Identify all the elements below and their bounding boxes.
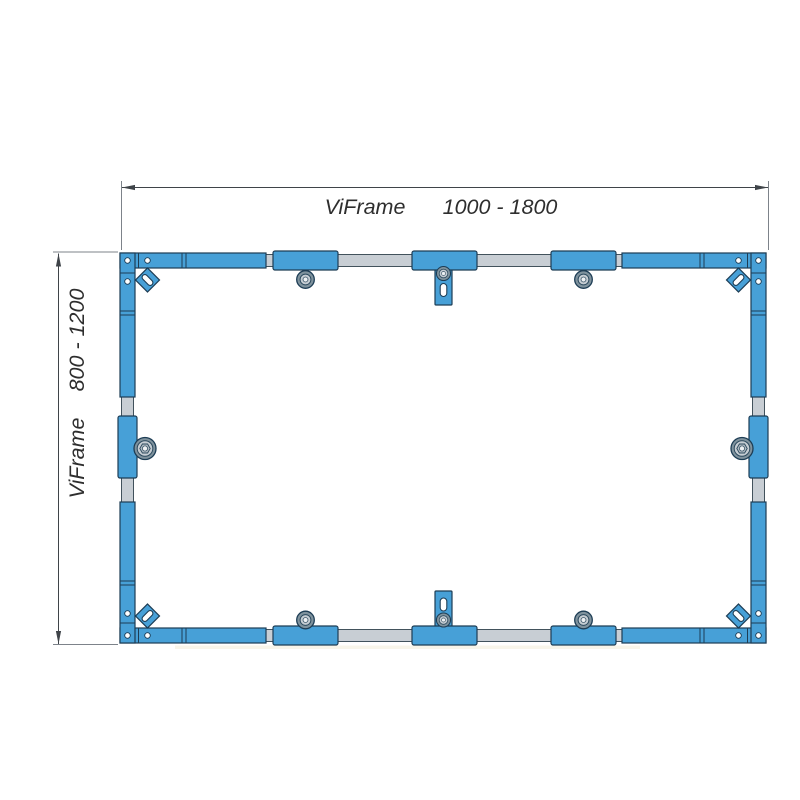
top-dimension: ViFrame 1000 - 1800 — [122, 181, 769, 250]
screw-hole — [125, 611, 131, 617]
right-rail-top-profile — [751, 253, 766, 397]
screw-hole — [756, 633, 762, 639]
bracket-slot — [440, 598, 447, 611]
top-rail-right-profile — [622, 253, 766, 268]
left-dimension-range: 800 - 1200 — [65, 289, 89, 392]
dimension-arrow-up-icon — [56, 254, 61, 267]
screw-hole — [125, 258, 131, 264]
frame-shadow — [175, 646, 640, 650]
screw-hole — [145, 633, 151, 639]
right-clamp-bolt — [731, 438, 753, 460]
dimension-arrow-down-icon — [56, 631, 61, 644]
dimension-arrow-left-icon — [122, 185, 135, 190]
bottom-rail-right-profile — [622, 628, 766, 643]
bottom-clamp-bolt-left — [297, 611, 315, 629]
top-dimension-label: ViFrame — [325, 195, 406, 219]
bracket-slot — [440, 284, 447, 297]
right-rail-bottom-profile — [751, 502, 766, 643]
dimension-arrow-right-icon — [755, 185, 768, 190]
bottom-rail-clamp-center — [412, 626, 477, 645]
corner-bracket-top-left — [135, 268, 159, 292]
frame-inner-tubes — [121, 254, 766, 643]
top-rail-left-profile — [120, 253, 266, 268]
frame-bottom-rail — [120, 626, 766, 645]
screw-hole — [145, 258, 151, 264]
screw-hole — [125, 279, 131, 285]
top-bracket-bolt — [436, 266, 450, 280]
left-dimension-label: ViFrame — [65, 418, 89, 499]
screw-hole — [756, 611, 762, 617]
top-rail-clamp-right — [551, 251, 616, 270]
top-dimension-range: 1000 - 1800 — [443, 195, 558, 219]
left-rail-bottom-profile — [120, 502, 135, 643]
top-clamp-bolt-left — [297, 271, 315, 289]
bottom-rail-left-profile — [120, 628, 266, 643]
screw-hole — [736, 633, 742, 639]
bottom-clamp-bolt-right — [575, 611, 593, 629]
corner-bracket-bottom-right — [726, 604, 750, 628]
screw-hole — [756, 279, 762, 285]
corner-bracket-top-right — [726, 268, 750, 292]
left-dimension: 800 - 1200 ViFrame — [53, 252, 118, 645]
top-rail-clamp-left — [273, 251, 338, 270]
bottom-bracket-bolt — [436, 613, 450, 627]
corner-bracket-bottom-left — [135, 604, 159, 628]
corner-screw-holes — [125, 258, 762, 639]
top-clamp-bolt-right — [575, 271, 593, 289]
screw-hole — [756, 258, 762, 264]
viframe-technical-drawing: ViFrame 1000 - 1800 800 - 1200 ViFrame — [0, 0, 800, 800]
left-clamp-bolt — [134, 438, 156, 460]
screw-hole — [736, 258, 742, 264]
left-rail-top-profile — [120, 253, 135, 397]
screw-hole — [125, 633, 131, 639]
